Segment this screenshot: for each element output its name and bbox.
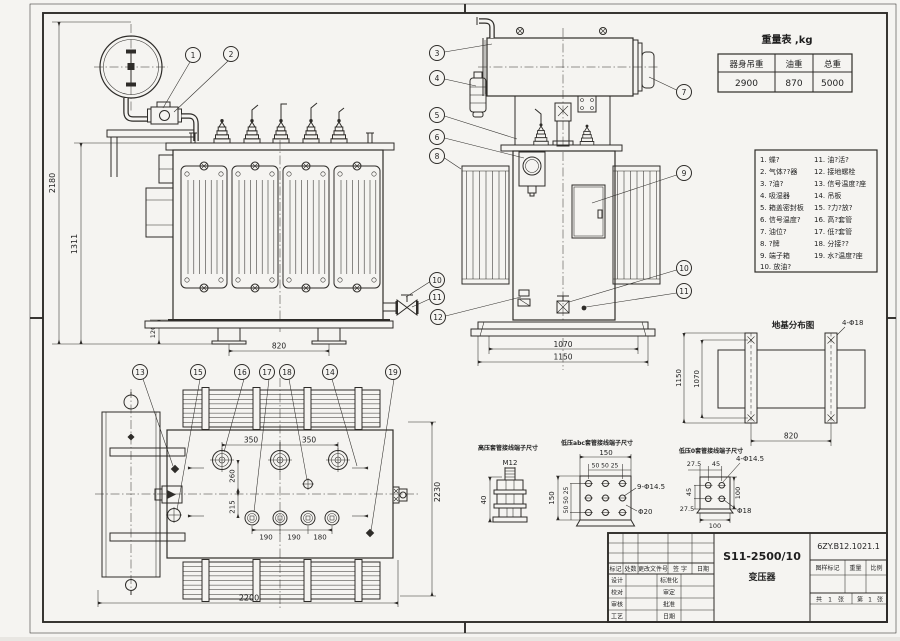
transformer-drawing-sheet: 2180 1311 120 820: [0, 0, 900, 637]
conservator-platform: [107, 130, 196, 137]
wt-value-oil: 870: [785, 79, 802, 89]
base-plate-front: [145, 321, 393, 328]
part-item-2: 2. 气体??器: [760, 167, 797, 176]
part-item-18: 18. 分接??: [814, 239, 849, 248]
tb-drawing-no: 6ZY.B12.1021.1: [817, 542, 880, 551]
tb-stamp-mark: 图样标记: [815, 564, 839, 572]
svg-text:16: 16: [237, 368, 247, 377]
part-item-8: 8. ?牌: [760, 239, 780, 248]
part-item-15: 15. ?力?放?: [814, 203, 853, 212]
svg-text:4: 4: [435, 74, 440, 83]
lv-abc-holes-label: 9-Φ14.5: [637, 483, 665, 491]
dim-2200: 2200: [239, 594, 259, 603]
dim-350-b: 350: [302, 436, 317, 445]
dim-100-right: 100: [734, 487, 742, 499]
svg-text:19: 19: [388, 368, 398, 377]
svg-text:8: 8: [435, 152, 440, 161]
dim-180: 180: [313, 534, 326, 542]
svg-text:11: 11: [432, 293, 442, 302]
svg-text:10: 10: [679, 264, 689, 273]
dim-sub-top: 50 50 25: [592, 463, 619, 470]
tb-model: S11-2500/10: [723, 550, 801, 563]
dim-1311: 1311: [70, 234, 79, 254]
svg-text:9: 9: [682, 169, 687, 178]
lv-abc-label: 低压abc套管接线端子尺寸: [560, 439, 633, 447]
tb-stamp-weight: 重量: [849, 564, 861, 572]
svg-text:15: 15: [193, 368, 203, 377]
part-item-5: 5. 箱盖密封板: [760, 203, 804, 212]
tb-stamp-scale: 比例: [870, 564, 882, 572]
dim-260: 260: [229, 469, 237, 482]
part-item-6: 6. 信号温度?: [760, 215, 801, 224]
svg-text:5: 5: [435, 111, 440, 120]
svg-text:12: 12: [433, 313, 443, 322]
tb-col-count: 处数: [624, 565, 636, 573]
svg-text:14: 14: [325, 368, 335, 377]
dim-2180: 2180: [48, 173, 57, 193]
part-item-4: 4. 吸湿器: [760, 191, 790, 200]
dim-150-left: 150: [548, 491, 556, 504]
base-side: [478, 322, 648, 329]
part-item-9: 9. 端子箱: [760, 251, 790, 260]
dim-150-top: 150: [599, 449, 612, 457]
part-item-10: 10. 放油?: [760, 262, 791, 271]
wt-header-total: 总重: [824, 59, 842, 70]
foundation-bolts-label: 4-Φ18: [842, 319, 863, 327]
tb-row-approve1: 审定: [663, 589, 675, 597]
part-item-12: 12. 接地螺栓: [814, 167, 855, 176]
tb-col-sign: 签 字: [673, 565, 687, 573]
svg-text:3: 3: [435, 49, 440, 58]
lv-o-holes-label: 4-Φ14.5: [736, 455, 764, 463]
tb-row-design: 设计: [611, 577, 623, 585]
dim-215: 215: [229, 500, 237, 513]
tb-sheet-total: 1: [828, 597, 832, 604]
lv-abc-boss-label: Φ20: [638, 508, 652, 516]
part-item-1: 1. 蝶?: [760, 155, 780, 164]
svg-text:11: 11: [679, 287, 689, 296]
tb-row-date2: 日期: [663, 613, 675, 621]
svg-text:6: 6: [435, 133, 440, 142]
wt-header-body: 器身吊重: [729, 59, 764, 70]
tb-sheet-num: 1: [868, 597, 872, 604]
wt-header-oil: 油重: [785, 59, 803, 70]
dim-190-a: 190: [259, 534, 272, 542]
dim-1150-foundation: 1150: [675, 369, 683, 387]
dim-1070-foundation: 1070: [693, 370, 701, 388]
callout-1-label: 1: [191, 51, 196, 60]
wt-value-total: 5000: [821, 79, 844, 89]
drawing-canvas: 2180 1311 120 820: [0, 0, 900, 637]
svg-text:10: 10: [432, 276, 442, 285]
dim-190-b: 190: [287, 534, 300, 542]
dim-40: 40: [480, 496, 488, 505]
dim-1150-side: 1150: [553, 353, 572, 362]
tb-col-date: 日期: [697, 565, 709, 573]
tb-col-mark: 标记: [609, 565, 621, 573]
tb-product-name: 变压器: [748, 571, 776, 583]
dim-45-left: 45: [685, 488, 693, 496]
part-item-17: 17. 低?套管: [814, 227, 852, 236]
part-item-3: 3. ?油?: [760, 179, 784, 188]
foundation-title: 地基分布图: [772, 320, 815, 331]
dim-275-top: 27.5: [687, 460, 701, 468]
dim-45-top: 45: [712, 460, 720, 468]
tb-row-review: 审核: [611, 601, 623, 609]
part-item-7: 7. 油位?: [760, 227, 787, 236]
dim-sub-left: 50 50 25: [563, 486, 570, 513]
svg-text:18: 18: [282, 368, 292, 377]
part-item-13: 13. 信号温度?座: [814, 179, 866, 188]
hv-thread-label: M12: [503, 459, 518, 467]
tb-sheet-gong: 共: [816, 596, 822, 604]
tb-row-process: 工艺: [611, 613, 623, 621]
dim-275-left: 27.5: [680, 505, 694, 513]
dim-820-front: 820: [272, 342, 287, 351]
svg-text:17: 17: [262, 368, 272, 377]
part-item-16: 16. 高?套管: [814, 215, 852, 224]
svg-text:7: 7: [682, 88, 687, 97]
tb-sheet-di: 第: [857, 596, 863, 604]
dim-100-bottom: 100: [709, 522, 721, 530]
tb-row-approve2: 批准: [663, 601, 675, 609]
svg-text:13: 13: [135, 368, 145, 377]
wt-value-body: 2900: [735, 79, 758, 89]
tb-row-check: 校对: [611, 589, 623, 597]
part-item-19: 19. 水?温度?座: [814, 251, 863, 260]
tb-sheet-zhang2: 张: [877, 596, 883, 604]
hv-detail-label: 高压套管接线端子尺寸: [478, 444, 538, 452]
lv-o-d18-label: Φ18: [737, 507, 751, 515]
weight-table-title: 重量表 ,kg: [761, 33, 812, 46]
dim-1070-side: 1070: [553, 340, 572, 349]
dim-2230: 2230: [433, 482, 442, 502]
callout-2-label: 2: [229, 50, 234, 59]
part-item-14: 14. 吊板: [814, 191, 841, 200]
tb-col-docno: 更改文件号: [638, 565, 668, 573]
dim-350-a: 350: [244, 436, 259, 445]
tb-sheet-zhang1: 张: [838, 596, 844, 604]
ground-bolt-dot: [582, 306, 587, 311]
lv-o-label: 低压0套管接线端子尺寸: [678, 447, 743, 455]
part-item-11: 11. 油?活?: [814, 155, 849, 164]
dim-820-foundation: 820: [784, 432, 799, 441]
tb-row-standard: 标准化: [660, 577, 678, 585]
